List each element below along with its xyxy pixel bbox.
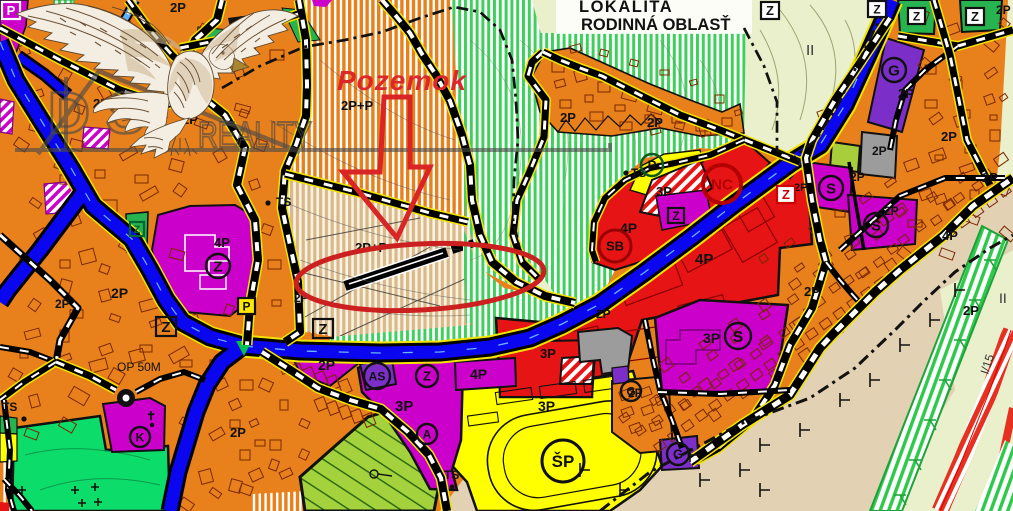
svg-text:2P: 2P bbox=[850, 170, 865, 184]
svg-text:G: G bbox=[626, 384, 635, 398]
svg-text:S: S bbox=[826, 180, 836, 197]
svg-text:2P: 2P bbox=[170, 0, 186, 15]
svg-text:2P: 2P bbox=[230, 425, 246, 440]
svg-text:II: II bbox=[999, 290, 1007, 306]
svg-text:P: P bbox=[242, 299, 250, 313]
svg-text:OP 50M: OP 50M bbox=[117, 360, 161, 374]
svg-text:Pozemok: Pozemok bbox=[337, 65, 467, 96]
svg-text:S: S bbox=[871, 217, 881, 234]
svg-text:2P: 2P bbox=[898, 86, 914, 101]
svg-text:A: A bbox=[423, 427, 432, 441]
svg-text:SB: SB bbox=[606, 239, 624, 254]
svg-text:Z: Z bbox=[766, 3, 774, 18]
svg-text:Z: Z bbox=[782, 187, 790, 202]
svg-text:3P: 3P bbox=[540, 346, 556, 361]
svg-text:Z: Z bbox=[213, 258, 222, 275]
svg-text:3P: 3P bbox=[395, 398, 413, 415]
svg-text:2P: 2P bbox=[318, 357, 335, 373]
svg-text:TS: TS bbox=[444, 468, 459, 482]
svg-text:3P: 3P bbox=[538, 398, 555, 414]
svg-text:Z: Z bbox=[318, 321, 327, 338]
svg-text:4P: 4P bbox=[470, 366, 487, 382]
svg-text:2P: 2P bbox=[111, 285, 128, 301]
svg-text:G: G bbox=[888, 62, 900, 79]
svg-text:AS: AS bbox=[369, 369, 386, 383]
svg-text:Z: Z bbox=[873, 2, 880, 16]
svg-text:2P: 2P bbox=[596, 307, 611, 321]
svg-text:G: G bbox=[673, 447, 683, 462]
svg-text:NC: NC bbox=[711, 176, 733, 193]
svg-text:3P: 3P bbox=[703, 330, 720, 346]
svg-text:TS: TS bbox=[276, 195, 291, 209]
svg-text:2P: 2P bbox=[872, 144, 887, 158]
svg-text:S: S bbox=[733, 329, 744, 346]
svg-text:P: P bbox=[648, 158, 657, 173]
svg-text:Z: Z bbox=[971, 9, 979, 24]
svg-text:K: K bbox=[136, 430, 145, 444]
svg-text:2P: 2P bbox=[963, 303, 979, 318]
svg-text:P: P bbox=[7, 3, 16, 18]
svg-text:2P: 2P bbox=[941, 129, 957, 144]
svg-text:Z: Z bbox=[423, 369, 431, 384]
svg-text:2P: 2P bbox=[996, 3, 1011, 17]
svg-text:✝: ✝ bbox=[146, 409, 156, 423]
svg-text:RODINNÁ OBLASŤ: RODINNÁ OBLASŤ bbox=[581, 15, 730, 34]
svg-text:2P: 2P bbox=[560, 110, 576, 125]
svg-text:2P: 2P bbox=[982, 170, 998, 185]
svg-text:Z: Z bbox=[161, 319, 170, 336]
svg-text:LOKALITA: LOKALITA bbox=[579, 0, 673, 16]
svg-text:Z: Z bbox=[913, 9, 920, 23]
svg-text:4P: 4P bbox=[214, 235, 230, 250]
svg-text:2P: 2P bbox=[804, 284, 820, 299]
svg-text:TS: TS bbox=[2, 400, 17, 414]
svg-text:4P: 4P bbox=[942, 228, 958, 243]
svg-text:ŠP: ŠP bbox=[552, 452, 575, 471]
svg-text:2P: 2P bbox=[647, 115, 663, 130]
svg-text:Z: Z bbox=[672, 209, 679, 223]
svg-text:REALITY: REALITY bbox=[198, 114, 312, 155]
svg-text:4P: 4P bbox=[695, 251, 713, 268]
svg-text:Z: Z bbox=[134, 224, 141, 236]
svg-text:II: II bbox=[806, 42, 814, 59]
svg-text:3P: 3P bbox=[656, 184, 672, 199]
svg-text:2P: 2P bbox=[55, 297, 70, 311]
svg-text:2P+P: 2P+P bbox=[341, 98, 373, 113]
svg-text:2P: 2P bbox=[884, 204, 899, 218]
